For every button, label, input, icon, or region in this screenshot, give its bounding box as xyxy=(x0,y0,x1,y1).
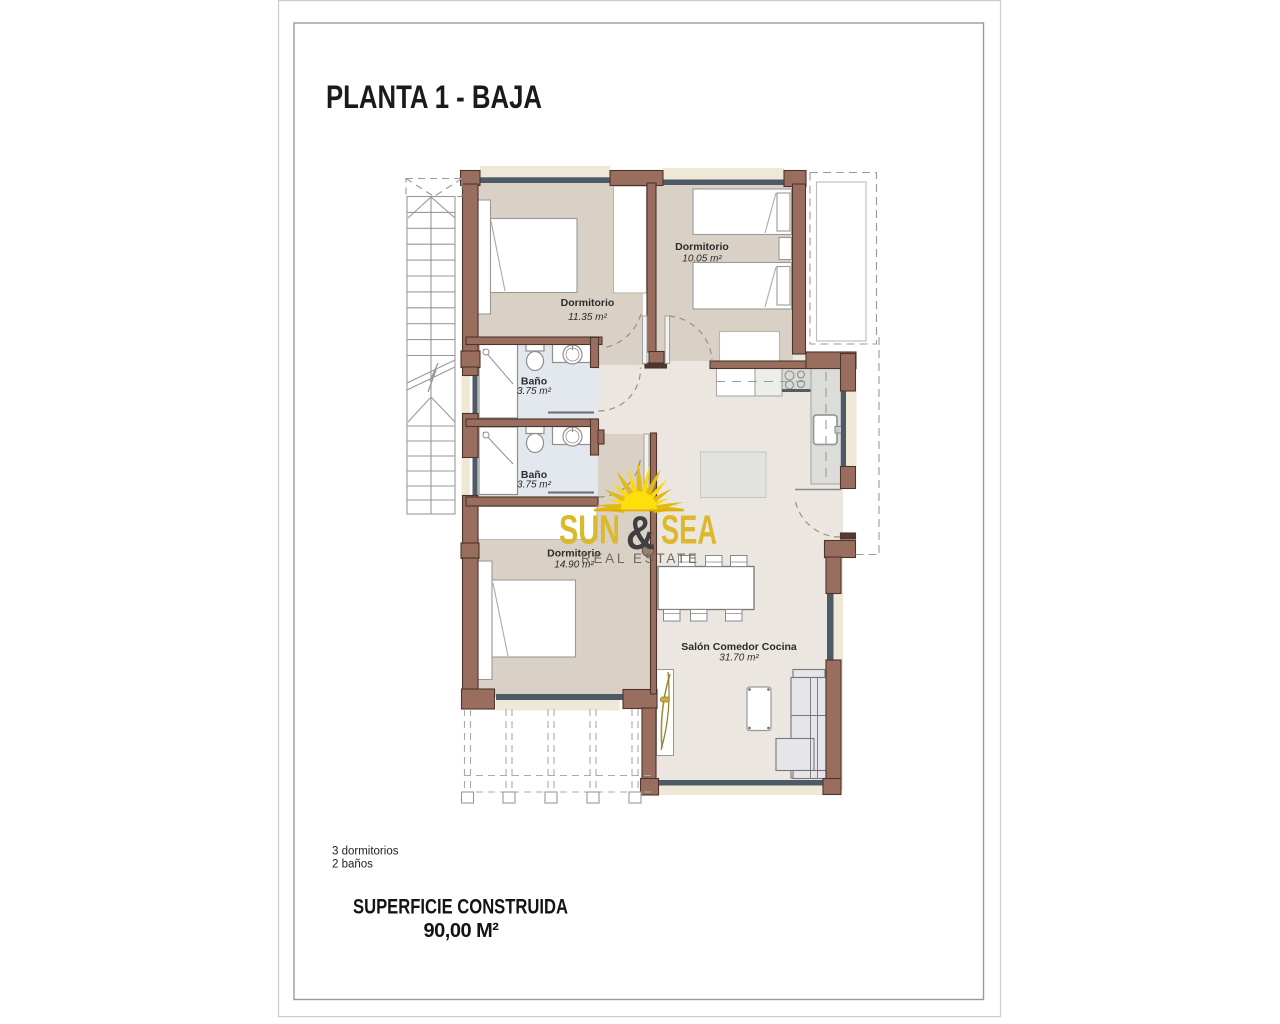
svg-text:Dormitorio: Dormitorio xyxy=(561,297,615,309)
svg-text:SUPERFICIE CONSTRUIDA: SUPERFICIE CONSTRUIDA xyxy=(353,896,568,919)
svg-text:3.75 m²: 3.75 m² xyxy=(517,386,552,397)
svg-text:PLANTA 1 - BAJA: PLANTA 1 - BAJA xyxy=(326,79,542,115)
svg-text:2 baños: 2 baños xyxy=(332,859,373,871)
svg-text:90,00 M²: 90,00 M² xyxy=(424,920,500,942)
svg-text:31.70 m²: 31.70 m² xyxy=(719,653,759,664)
svg-text:REAL ESTATE: REAL ESTATE xyxy=(581,551,701,566)
svg-text:3.75 m²: 3.75 m² xyxy=(517,480,552,491)
svg-text:Dormitorio: Dormitorio xyxy=(675,241,729,253)
svg-text:10.05 m²: 10.05 m² xyxy=(682,254,722,265)
svg-text:3 dormitorios: 3 dormitorios xyxy=(332,846,399,858)
svg-text:11.35 m²: 11.35 m² xyxy=(568,312,607,323)
svg-text:SEA: SEA xyxy=(661,507,717,553)
svg-text:SUN: SUN xyxy=(559,507,620,553)
svg-text:Salón Comedor Cocina: Salón Comedor Cocina xyxy=(681,641,797,653)
